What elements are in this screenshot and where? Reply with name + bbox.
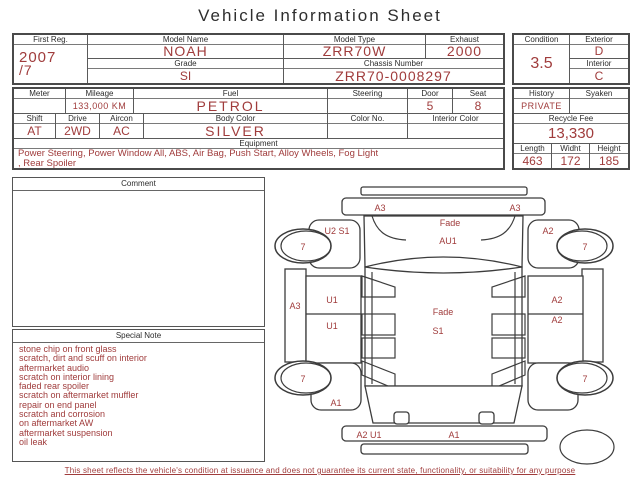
model-name-cell: Model Name NOAH — [88, 35, 284, 59]
rear-hatch — [365, 386, 522, 424]
door-value: 5 — [408, 98, 452, 113]
damage-label-front-bar-right: A3 — [509, 203, 520, 213]
grade-value: SI — [88, 68, 283, 83]
damage-label-left-door-rear: U1 — [326, 321, 338, 331]
damage-label-rear-bar-left: A2 U1 — [356, 430, 381, 440]
chassis-number-value: ZRR70-0008297 — [284, 68, 503, 83]
syaken-cell: Syaken — [570, 89, 628, 114]
seat-cell: Seat 8 — [453, 89, 503, 114]
model-type-cell: Model Type ZRR70W — [284, 35, 426, 59]
vehicle-information-sheet: Vehicle Information Sheet First Reg. 200… — [0, 0, 640, 480]
front-strip — [361, 187, 527, 195]
color-no-value — [328, 123, 407, 138]
page-title: Vehicle Information Sheet — [0, 6, 640, 26]
special-note-box: Special Note stone chip on front glass s… — [12, 329, 265, 462]
body-color-value: SILVER — [144, 123, 327, 138]
details-table: Meter Mileage 133,000 KM Fuel PETROL Ste… — [12, 87, 505, 170]
fuel-cell: Fuel PETROL — [134, 89, 328, 114]
damage-label-roof-s1: S1 — [432, 326, 443, 336]
shift-cell: Shift AT — [14, 114, 56, 139]
damage-label-wheel-front-right: 7 — [582, 242, 587, 252]
left-sill — [285, 269, 306, 362]
damage-label-wheel-rear-right: 7 — [582, 374, 587, 384]
shift-value: AT — [14, 123, 55, 138]
car-damage-diagram: A3 A3 Fade AU1 U2 S1 A2 A3 U1 U1 A2 A2 F… — [266, 176, 638, 468]
comment-box: Comment — [12, 177, 265, 327]
condition-value: 3.5 — [514, 44, 569, 83]
exhaust-value: 2000 — [426, 44, 503, 58]
syaken-value — [570, 98, 628, 113]
first-reg-cell: First Reg. 2007 /7 — [14, 35, 88, 83]
rear-strip — [361, 444, 528, 454]
first-reg-value: 2007 /7 — [14, 44, 87, 83]
model-name-value: NOAH — [88, 44, 283, 58]
interior-color-value — [408, 123, 503, 138]
damage-label-left-sill: A3 — [289, 301, 300, 311]
damage-label-rear-bar-center: A1 — [448, 430, 459, 440]
meter-value — [14, 98, 65, 113]
equipment-line-2: , Rear Spoiler — [18, 159, 499, 169]
damage-label-right-front-fender: A2 — [542, 226, 553, 236]
grade-cell: Grade SI — [88, 59, 284, 83]
interior-cell: Interior C — [570, 59, 628, 83]
recycle-fee-value: 13,330 — [514, 123, 628, 143]
length-cell: Length 463 — [514, 144, 552, 168]
drive-value: 2WD — [56, 123, 99, 138]
history-cell: History PRIVATE — [514, 89, 570, 114]
damage-label-wheel-front-left: 7 — [300, 242, 305, 252]
equipment-line-1: Power Steering, Power Window All, ABS, A… — [18, 149, 499, 159]
mileage-value: 133,000 KM — [66, 98, 133, 113]
height-cell: Height 185 — [590, 144, 628, 168]
drive-cell: Drive 2WD — [56, 114, 100, 139]
model-type-value: ZRR70W — [284, 44, 425, 58]
recycle-fee-cell: Recycle Fee 13,330 — [514, 114, 628, 144]
steering-value — [328, 98, 407, 113]
history-table: History PRIVATE Syaken Recycle Fee 13,33… — [512, 87, 630, 170]
exterior-value: D — [570, 44, 628, 58]
damage-label-au1: AU1 — [439, 236, 457, 246]
damage-label-left-door-front: U1 — [326, 295, 338, 305]
disclaimer-text: This sheet reflects the vehicle's condit… — [0, 466, 640, 475]
height-value: 185 — [590, 153, 628, 168]
condition-cell: Condition 3.5 — [514, 35, 570, 83]
roof-panel — [365, 257, 522, 386]
body-color-cell: Body Color SILVER — [144, 114, 328, 139]
damage-label-front-bar-left: A3 — [374, 203, 385, 213]
door-cell: Door 5 — [408, 89, 453, 114]
chassis-number-cell: Chassis Number ZRR70-0008297 — [284, 59, 503, 83]
identity-table: First Reg. 2007 /7 Model Name NOAH Model… — [12, 33, 505, 85]
exterior-cell: Exterior D — [570, 35, 628, 59]
interior-value: C — [570, 68, 628, 83]
condition-table: Condition 3.5 Exterior D Interior C — [512, 33, 630, 85]
special-note-line: aftermarket suspension — [19, 429, 264, 438]
special-note-body: stone chip on front glass scratch, dirt … — [13, 342, 264, 461]
aircon-value: AC — [100, 123, 143, 138]
damage-label-left-rear-fender: A1 — [330, 398, 341, 408]
seat-value: 8 — [453, 98, 503, 113]
width-value: 172 — [552, 153, 589, 168]
damage-label-left-front-fender: U2 S1 — [324, 226, 349, 236]
exhaust-cell: Exhaust 2000 — [426, 35, 503, 59]
right-sill — [582, 269, 603, 362]
first-reg-month: /7 — [19, 64, 33, 77]
damage-label-right-door-rear: A2 — [551, 315, 562, 325]
interior-color-cell: Interior Color — [408, 114, 503, 139]
steering-cell: Steering — [328, 89, 408, 114]
aircon-cell: Aircon AC — [100, 114, 144, 139]
meter-cell: Meter — [14, 89, 66, 114]
length-value: 463 — [514, 153, 551, 168]
left-doors — [306, 276, 361, 363]
width-cell: Widht 172 — [552, 144, 590, 168]
mileage-cell: Mileage 133,000 KM — [66, 89, 134, 114]
comment-body — [13, 190, 264, 326]
damage-label-fade-front: Fade — [440, 218, 461, 228]
damage-label-wheel-rear-left: 7 — [300, 374, 305, 384]
special-note-line: oil leak — [19, 438, 264, 447]
spare-tire-icon — [560, 430, 614, 464]
history-value: PRIVATE — [514, 98, 569, 113]
fuel-value: PETROL — [134, 98, 327, 113]
damage-label-roof-fade: Fade — [433, 307, 454, 317]
damage-label-right-door-front: A2 — [551, 295, 562, 305]
equipment-text: Power Steering, Power Window All, ABS, A… — [14, 148, 503, 168]
color-no-cell: Color No. — [328, 114, 408, 139]
